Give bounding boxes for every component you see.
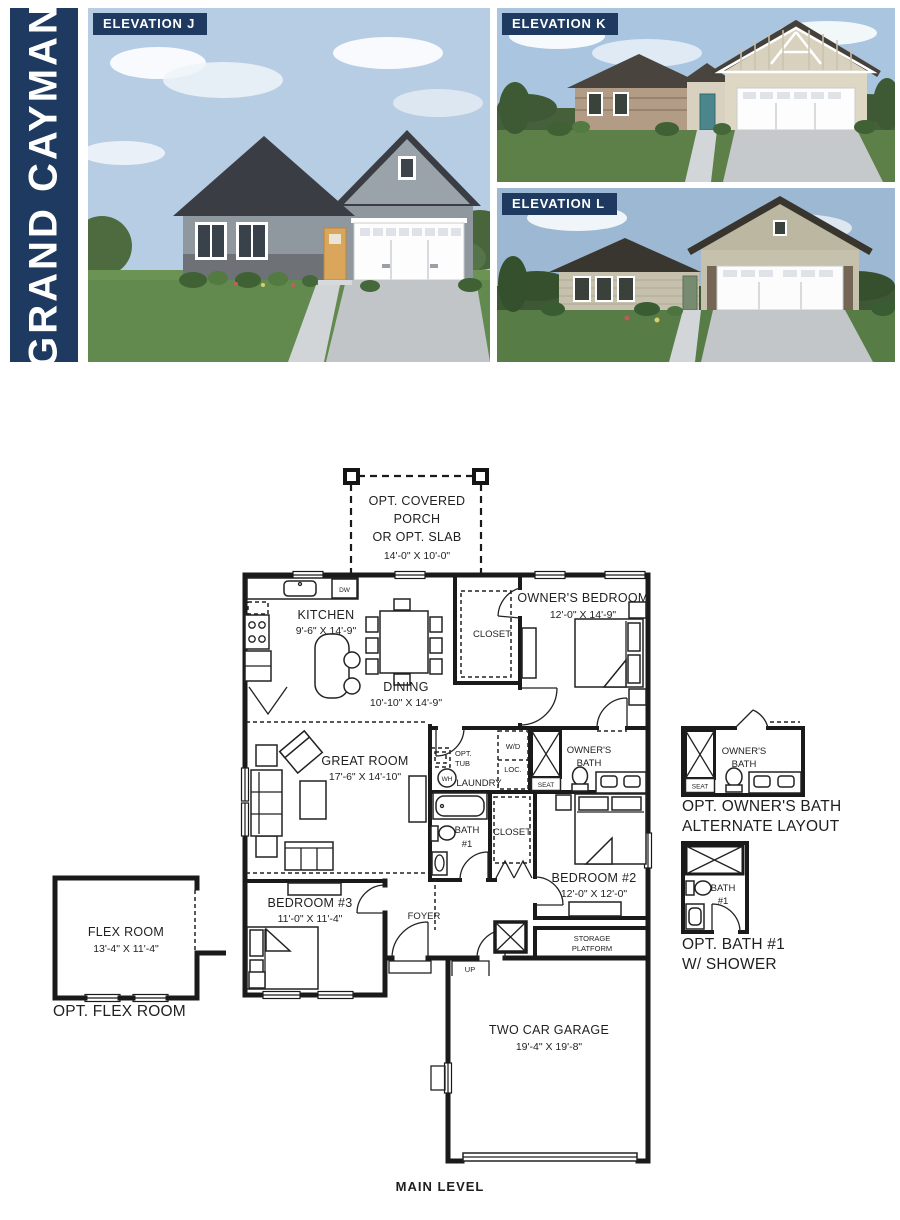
foyer-area: FOYER UP <box>389 911 526 976</box>
title-banner: GRAND CAYMAN <box>10 8 78 362</box>
bedroom2-label: BEDROOM #2 <box>552 871 637 885</box>
washer-dryer-label: W/D <box>506 742 521 751</box>
opt-bath1-label-1: BATH <box>711 883 736 894</box>
dining-dims: 10'-10" X 14'-9" <box>370 697 442 709</box>
brochure-page: GRAND CAYMAN <box>0 0 900 1220</box>
water-heater-label: WH <box>442 776 453 783</box>
page-title: GRAND CAYMAN <box>22 2 67 368</box>
opt-bath1-label-2: #1 <box>718 896 729 907</box>
porch-label-2: PORCH <box>394 512 441 526</box>
bedroom3-dims: 11'-0" X 11'-4" <box>278 913 343 925</box>
porch-area: OPT. COVERED PORCH OR OPT. SLAB 14'-0" X… <box>345 470 487 573</box>
flex-room-label: FLEX ROOM <box>88 925 164 939</box>
level-label: MAIN LEVEL <box>396 1179 485 1194</box>
opt-bath1-area: BATH #1 OPT. BATH #1 W/ SHOWER <box>682 843 785 973</box>
bedroom2-closet-label: CLOSET <box>493 827 531 838</box>
alt-bath-seat-label: SEAT <box>692 784 709 791</box>
great-room-area: GREAT ROOM 17'-6" X 14'-10" <box>251 731 426 870</box>
elevation-l-label: ELEVATION L <box>502 193 617 215</box>
porch-dims: 14'-0" X 10'-0" <box>384 550 451 562</box>
alt-bath-caption-1: OPT. OWNER'S BATH <box>682 798 841 815</box>
garage-dims: 19'-4" X 19'-8" <box>516 1041 583 1053</box>
opt-bath1-caption-1: OPT. BATH #1 <box>682 936 785 953</box>
bedroom3-label: BEDROOM #3 <box>268 896 353 910</box>
alt-bath-caption-2: ALTERNATE LAYOUT <box>682 818 840 835</box>
foyer-label: FOYER <box>408 911 441 922</box>
great-room-dims: 17'-6" X 14'-10" <box>329 771 401 783</box>
porch-label-1: OPT. COVERED <box>369 494 466 508</box>
elevation-j-photo: ELEVATION J <box>88 8 490 362</box>
laundry-area: OPT. TUB WH LAUNDRY W/D LOC. <box>431 742 522 789</box>
garage-label: TWO CAR GARAGE <box>489 1023 609 1037</box>
alt-owners-bath-area: SEAT OWNER'S BATH OPT. OWNER'S BATH ALTE… <box>682 710 841 835</box>
owners-bath-seat-label: SEAT <box>538 782 555 789</box>
dining-label: DINING <box>383 680 429 694</box>
bath1-label-1: BATH <box>455 825 480 836</box>
owners-bath-area: SEAT OWNER'S BATH <box>532 731 647 794</box>
stairs-up-label: UP <box>465 965 475 974</box>
bath1-label-2: #1 <box>462 839 473 850</box>
flex-room-dims: 13'-4" X 11'-4" <box>93 943 159 955</box>
owners-closet-label: CLOSET <box>473 629 511 640</box>
great-room-label: GREAT ROOM <box>321 754 408 768</box>
laundry-label: LAUNDRY <box>456 778 502 789</box>
bedroom2-dims: 12'-0" X 12'-0" <box>561 888 628 900</box>
elevation-k-photo: ELEVATION K <box>497 8 895 182</box>
loc-label: LOC. <box>504 765 522 774</box>
garage-area: TWO CAR GARAGE 19'-4" X 19'-8" <box>431 1023 637 1161</box>
floor-plan: OPT. COVERED PORCH OR OPT. SLAB 14'-0" X… <box>0 430 900 1220</box>
flex-room-caption: OPT. FLEX ROOM <box>53 1003 186 1020</box>
opt-bath1-caption-2: W/ SHOWER <box>682 956 777 973</box>
dining-area: DINING 10'-10" X 14'-9" <box>366 599 442 709</box>
storage-label-1: STORAGE <box>574 934 611 943</box>
owners-bath-label-1: OWNER'S <box>567 745 612 756</box>
kitchen-label: KITCHEN <box>298 608 355 622</box>
bedroom3-area: BEDROOM #3 11'-0" X 11'-4" <box>247 883 352 989</box>
opt-tub-label-1: OPT. <box>455 749 472 758</box>
bedroom2-area: BEDROOM #2 12'-0" X 12'-0" <box>552 794 646 916</box>
storage-platform-area: STORAGE PLATFORM <box>572 934 612 953</box>
elevation-l-photo: ELEVATION L <box>497 188 895 362</box>
storage-label-2: PLATFORM <box>572 944 612 953</box>
elevation-j-illustration <box>88 8 490 362</box>
dishwasher-label: DW <box>339 587 351 594</box>
opt-tub-label-2: TUB <box>455 759 470 768</box>
elevation-k-label: ELEVATION K <box>502 13 618 35</box>
porch-label-3: OR OPT. SLAB <box>372 530 461 544</box>
kitchen-area: DW KITCHEN 9'-6" X 14'-9" <box>245 578 360 714</box>
elevation-j-label: ELEVATION J <box>93 13 207 35</box>
alt-bath-label-1: OWNER'S <box>722 746 767 757</box>
kitchen-dims: 9'-6" X 14'-9" <box>296 625 357 637</box>
